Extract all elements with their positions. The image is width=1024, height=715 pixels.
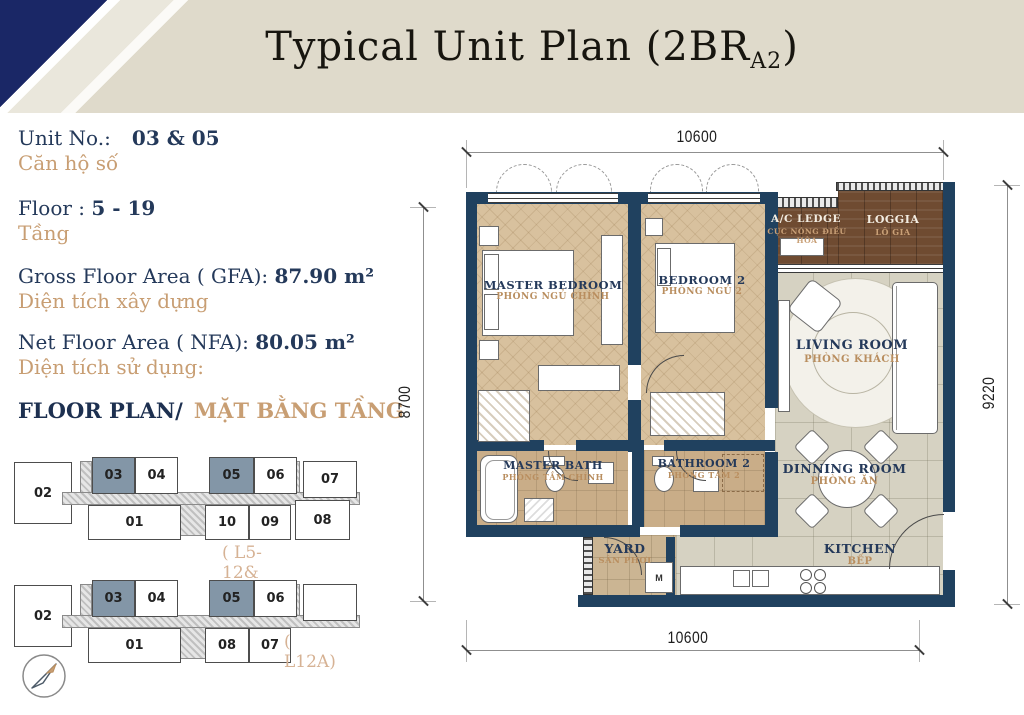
title-subscript: A2 [750, 49, 782, 74]
dimension-line-bottom [466, 650, 920, 651]
gfa-value: 87.90 m² [274, 264, 374, 288]
keyplan-unit-highlight: 03 [92, 580, 135, 617]
stove-burner [814, 582, 826, 594]
loggia-parapet [836, 182, 947, 191]
keyplan-unit-highlight: 03 [92, 457, 135, 494]
dimension-line-right [1007, 185, 1008, 605]
unit-number: 04 [147, 468, 165, 483]
bench [538, 365, 620, 391]
floor-value: 5 - 19 [91, 196, 155, 220]
keyplan-unit: 01 [88, 628, 181, 663]
room-label-bedroom2: BEDROOM 2 [638, 273, 766, 287]
room-label-loggia-vi: LÔ GIA [858, 227, 928, 237]
extension-line [943, 140, 944, 180]
floor-vietnamese: Tầng [18, 221, 69, 245]
gfa-line: Gross Floor Area ( GFA): 87.90 m² [18, 264, 374, 288]
room-label-master-bedroom-vi: PHÒNG NGỦ CHÍNH [478, 292, 628, 302]
unit-number: 06 [266, 468, 284, 483]
unit-number: 08 [218, 638, 236, 653]
keyplan-unit-highlight: 05 [209, 580, 254, 617]
washer-label: M [655, 573, 663, 583]
nfa-value: 80.05 m² [255, 330, 355, 354]
room-label-ac-ledge-vi: CỤC NÓNG ĐIỀU HÒA [762, 227, 852, 245]
wall [592, 525, 640, 537]
gfa-vietnamese: Diện tích xây dựng [18, 289, 209, 313]
keyplan-unit: 09 [249, 505, 291, 540]
sliding-door [778, 264, 943, 273]
dimension-bottom-value: 10600 [667, 628, 708, 648]
keyplan-unit: 04 [135, 457, 178, 494]
room-label-bedroom2-vi: PHÒNG NGỦ 2 [638, 287, 766, 297]
keyplan-core [80, 461, 92, 493]
wall [664, 440, 775, 451]
floor-line: Floor : 5 - 19 [18, 196, 155, 220]
keyplan-core [178, 504, 208, 536]
floorplan-heading-en: FLOOR PLAN/ [18, 398, 183, 423]
unit-number: 03 [104, 468, 122, 483]
window-swing-arc [496, 164, 552, 192]
slide: Typical Unit Plan (2BRA2) Unit No.: 03 &… [0, 0, 1024, 715]
room-label-yard: YARD [585, 541, 665, 556]
window-swing-arc [650, 164, 703, 192]
room-label-ac-ledge: A/C LEDGE [770, 213, 842, 225]
unit-number: 06 [266, 591, 284, 606]
dimension-line-top [466, 152, 944, 153]
unit-no-value: 03 & 05 [132, 126, 220, 150]
keyplan-unit: 10 [205, 505, 249, 540]
wall [943, 182, 955, 512]
window-swing-arc [556, 164, 612, 192]
keyplan-core [80, 584, 92, 616]
room-label-bathroom2: BATHROOM 2 [640, 457, 768, 470]
unit-number: 01 [125, 638, 143, 653]
keyplan-unit: 01 [88, 505, 181, 540]
extension-line [466, 620, 467, 662]
unit-number: 03 [104, 591, 122, 606]
stove-burner [814, 569, 826, 581]
title-prefix: Typical Unit Plan (2BR [265, 24, 750, 70]
wall [578, 595, 955, 607]
keyplan-unit: 04 [135, 580, 178, 617]
keyplan-unit: 08 [295, 500, 350, 540]
unit-number: 05 [222, 468, 240, 483]
window [488, 193, 618, 203]
unit-number: 07 [261, 638, 279, 653]
title-suffix: ) [782, 24, 799, 70]
extension-line [466, 140, 467, 188]
unit-no-line: Unit No.: 03 & 05 [18, 126, 220, 150]
keyplan-unit: 06 [254, 457, 297, 494]
unit-number: 09 [261, 515, 279, 530]
nightstand [645, 218, 663, 236]
room-label-kitchen: KITCHEN [800, 541, 920, 556]
keyplan-unit: 08 [205, 628, 249, 663]
page-title: Typical Unit Plan (2BRA2) [0, 24, 1024, 74]
unit-no-label: Unit No.: [18, 126, 111, 150]
nfa-line: Net Floor Area ( NFA): 80.05 m² [18, 330, 355, 354]
wardrobe [650, 392, 725, 436]
extension-line [919, 620, 920, 662]
unit-number: 07 [321, 472, 339, 487]
header-bar: Typical Unit Plan (2BRA2) [0, 0, 1024, 113]
unit-number: 10 [218, 515, 236, 530]
unit-number: 01 [125, 515, 143, 530]
washing-machine: M [645, 562, 673, 593]
wall [680, 525, 778, 537]
room-label-kitchen-vi: BẾP [800, 556, 920, 567]
stove-burner [800, 582, 812, 594]
wall [632, 440, 644, 527]
keyplan-2-caption: ( L12A) [284, 632, 336, 672]
floorplan-heading-vi: MẶT BẰNG TẦNG [194, 398, 404, 423]
keyplan-unit: 07 [303, 461, 357, 498]
wall [576, 440, 632, 451]
wall [466, 525, 592, 537]
keyplan-unit: 06 [254, 580, 297, 617]
room-label-living-room: LIVING ROOM [782, 338, 922, 353]
dimension-right-value: 9220 [979, 377, 999, 410]
room-label-master-bath-vi: PHÒNG TẮM CHÍNH [478, 472, 628, 482]
unit-number: 02 [34, 486, 52, 501]
sink-bowl [752, 570, 769, 587]
window [648, 193, 760, 203]
keyplan-core [178, 627, 208, 659]
room-label-bathroom2-vi: PHÒNG TẮM 2 [640, 470, 768, 480]
nfa-label: Net Floor Area ( NFA): [18, 330, 255, 354]
room-label-loggia: LOGGIA [858, 213, 928, 226]
ac-ledge-louver [775, 197, 838, 208]
dimension-top-value: 10600 [676, 127, 717, 147]
unit-number: 08 [313, 513, 331, 528]
room-label-living-room-vi: PHÒNG KHÁCH [782, 354, 922, 365]
room-label-dining-room-vi: PHÒNG ĂN [772, 476, 917, 487]
wall [466, 192, 477, 537]
room-label-yard-vi: SÂN PHƠI [585, 556, 665, 566]
dimension-left-value: 8700 [395, 386, 415, 419]
nightstand [479, 226, 499, 246]
shower-tray [524, 498, 554, 522]
unit-no-vietnamese: Căn hộ số [18, 151, 118, 175]
unit-number: 04 [147, 591, 165, 606]
gfa-label: Gross Floor Area ( GFA): [18, 264, 274, 288]
compass-icon [20, 652, 68, 700]
window-swing-arc [706, 164, 759, 192]
unit-number: 02 [34, 609, 52, 624]
room-label-dining-room: DINNING ROOM [772, 461, 917, 476]
sink-bowl [733, 570, 750, 587]
room-label-master-bedroom: MASTER BEDROOM [478, 278, 628, 292]
floorplan-heading: FLOOR PLAN/ MẶT BẰNG TẦNG [18, 398, 404, 423]
nfa-vietnamese: Diện tích sử dụng: [18, 355, 204, 379]
dimension-line-left [423, 207, 424, 602]
keyplan-unit [303, 584, 357, 621]
wardrobe [478, 390, 530, 442]
floor-label: Floor : [18, 196, 91, 220]
nightstand [479, 340, 499, 360]
keyplan-unit-highlight: 05 [209, 457, 254, 494]
room-label-master-bath: MASTER BATH [478, 459, 628, 472]
unit-number: 05 [222, 591, 240, 606]
stove-burner [800, 569, 812, 581]
